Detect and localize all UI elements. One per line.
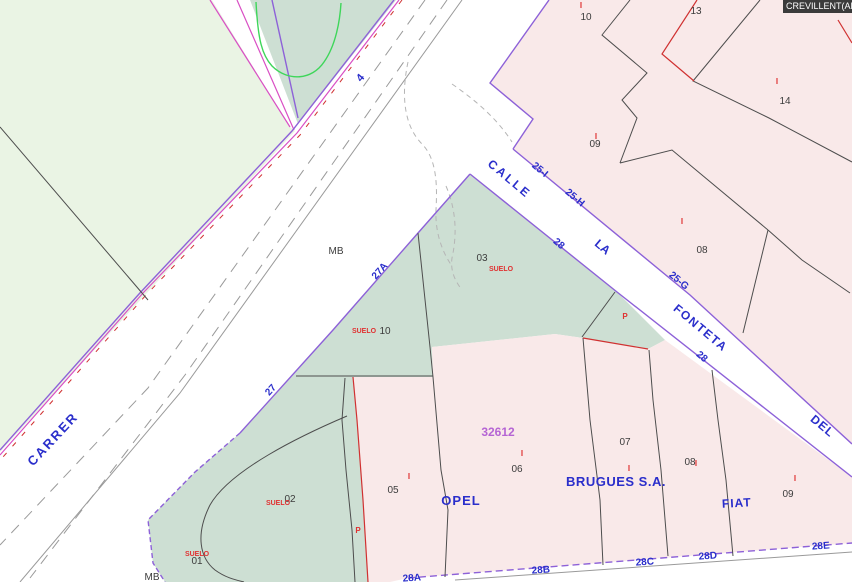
construction-mark-09-lower: I xyxy=(794,474,796,483)
house-number-28d: 28D xyxy=(698,550,717,562)
region-fills xyxy=(0,0,852,582)
suelo-label-01: SUELO xyxy=(185,551,210,558)
parcel-number-06: 06 xyxy=(511,464,523,475)
parcel-number-09-lower: 09 xyxy=(782,489,794,500)
house-number-28a: 28A xyxy=(402,572,421,582)
construction-mark-07: I xyxy=(628,464,630,473)
street-label-la: LA xyxy=(592,236,614,257)
cadastral-ref-32612: 32612 xyxy=(481,425,515,439)
business-label-opel: OPEL xyxy=(441,493,480,508)
suelo-label-03: SUELO xyxy=(489,266,514,273)
parcel-number-07: 07 xyxy=(619,437,631,448)
construction-mark-10: I xyxy=(580,1,582,10)
parking-mark-east: P xyxy=(622,312,628,321)
suelo-label-10: SUELO xyxy=(352,328,377,335)
construction-mark-05: I xyxy=(408,472,410,481)
house-number-28c: 28C xyxy=(635,556,654,568)
construction-mark-08-upper: I xyxy=(681,217,683,226)
construction-mark-14: I xyxy=(776,77,778,86)
cadastral-map[interactable]: CARRER4CALLE25-I25-H28LA25-GFONTETA28DEL… xyxy=(0,0,852,582)
parcel-number-10-suelo: 10 xyxy=(379,326,391,337)
business-label-brugues: BRUGUES S.A. xyxy=(566,474,666,489)
parcel-number-03: 03 xyxy=(476,253,488,264)
business-label-fiat: FIAT xyxy=(722,495,752,511)
house-number-28b: 28B xyxy=(531,564,550,576)
parcel-number-05: 05 xyxy=(387,485,399,496)
map-note-mb-center: MB xyxy=(329,246,344,257)
suelo-label-02: SUELO xyxy=(266,500,291,507)
parcel-number-14: 14 xyxy=(779,96,791,107)
parcel-number-08-upper: 08 xyxy=(696,245,708,256)
parcel-number-13: 13 xyxy=(690,6,702,17)
parcel-number-10: 10 xyxy=(580,12,592,23)
construction-mark-09-upper: I xyxy=(595,132,597,141)
house-number-28e: 28E xyxy=(812,540,831,552)
construction-mark-08-lower: I xyxy=(695,459,697,468)
cadastral-map-viewer: CARRER4CALLE25-I25-H28LA25-GFONTETA28DEL… xyxy=(0,0,852,582)
map-sheet-title-text: CREVILLENT(ALI xyxy=(786,1,852,11)
construction-mark-06: I xyxy=(521,449,523,458)
parking-mark-west: P xyxy=(355,526,361,535)
map-sheet-title: CREVILLENT(ALI xyxy=(783,0,852,13)
map-note-mb-bottom: MB xyxy=(145,572,160,582)
parcel-field-northwest[interactable] xyxy=(0,0,295,452)
